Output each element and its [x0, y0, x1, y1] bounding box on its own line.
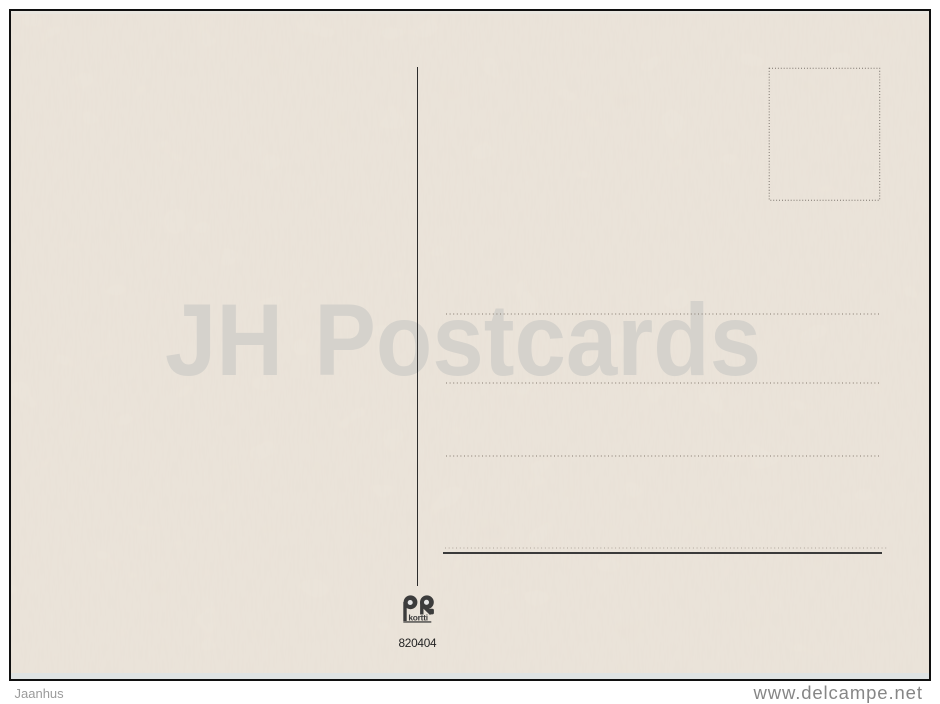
svg-text:kortti: kortti [408, 612, 427, 622]
